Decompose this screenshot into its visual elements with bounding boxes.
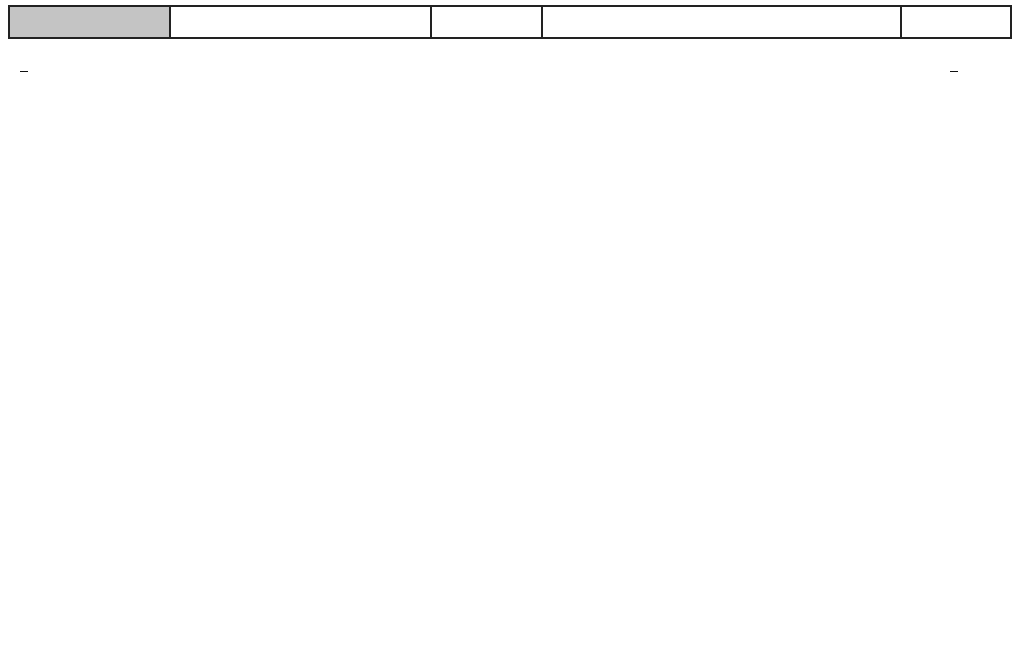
station-floorplan-page	[0, 0, 1024, 650]
floorplan-drawing	[0, 0, 1024, 650]
